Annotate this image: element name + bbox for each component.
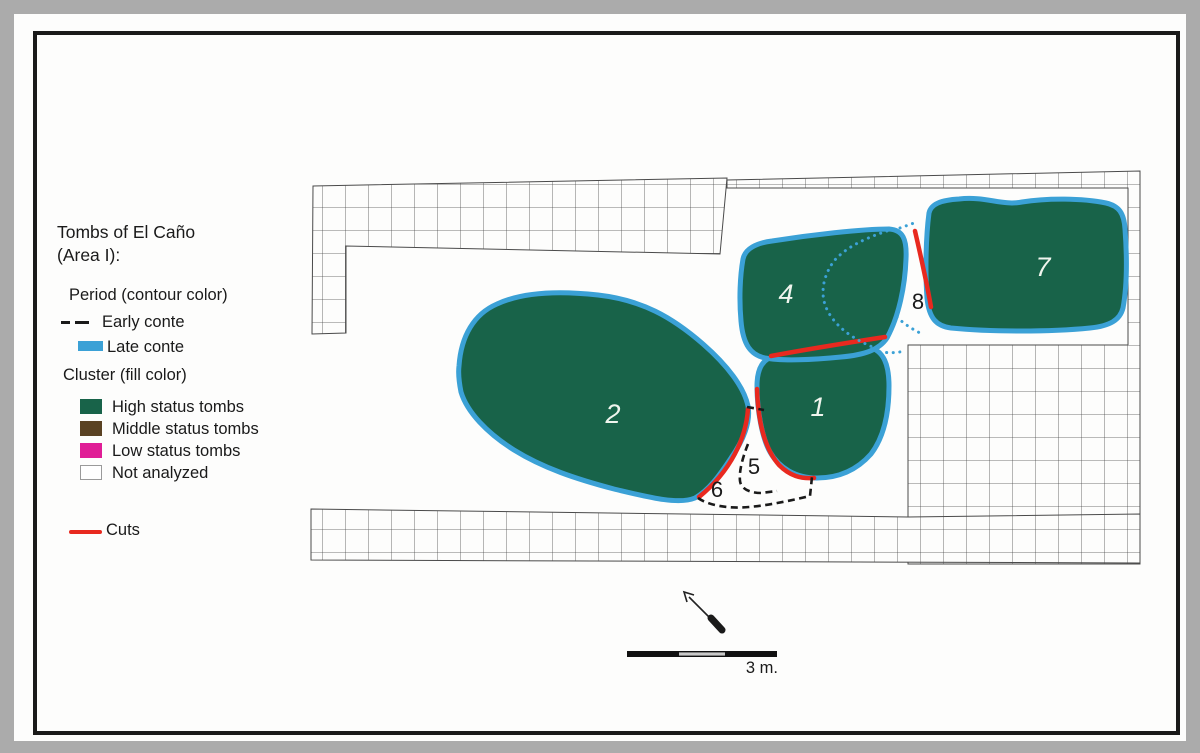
legend-early-conte-label: Early conte [102, 313, 185, 332]
legend-cuts-label: Cuts [106, 521, 140, 540]
legend-middle-status-label: Middle status tombs [112, 420, 259, 439]
tomb-7-label: 7 [1035, 252, 1051, 282]
north-arrow-solid-head [711, 618, 722, 630]
tomb-7-shape [926, 198, 1126, 331]
tomb-4-shape [740, 229, 906, 360]
map-title: Tombs of El Caño (Area I): [57, 221, 195, 267]
legend-late-conte-label: Late conte [107, 338, 184, 357]
scale-bar: 3 m. [627, 651, 778, 677]
tomb-4-label: 4 [778, 279, 793, 309]
early-conte-dash-icon [61, 321, 70, 324]
middle-status-swatch [80, 421, 102, 436]
scale-label: 3 m. [746, 659, 778, 677]
legend: Tombs of El Caño (Area I): Period (conto… [0, 0, 330, 753]
cuts-line-swatch [69, 530, 102, 534]
low-status-swatch [80, 443, 102, 458]
high-status-swatch [80, 399, 102, 414]
early-conte-dash-icon [75, 321, 89, 324]
legend-not-analyzed-label: Not analyzed [112, 464, 208, 483]
scale-bar-inner-segment [679, 652, 725, 655]
legend-period-heading: Period (contour color) [69, 286, 228, 305]
dotted-contour-tomb1-top-right [880, 351, 904, 353]
label-5: 5 [748, 454, 760, 479]
not-analyzed-swatch [80, 465, 102, 480]
legend-cluster-heading: Cluster (fill color) [63, 366, 187, 385]
legend-high-status-label: High status tombs [112, 398, 244, 417]
tomb-2-label: 2 [604, 399, 620, 429]
grid-bottom-strip [311, 509, 1140, 563]
label-6: 6 [711, 477, 723, 502]
dotted-contour-top-junction [900, 223, 914, 228]
tomb-2-shape [459, 293, 749, 501]
legend-low-status-label: Low status tombs [112, 442, 240, 461]
label-8: 8 [912, 289, 924, 314]
late-conte-line-swatch [78, 341, 103, 351]
tomb-1-label: 1 [810, 392, 825, 422]
map-title-line2: (Area I): [57, 244, 195, 267]
north-arrow-icon [684, 592, 722, 630]
map-title-line1: Tombs of El Caño [57, 221, 195, 244]
dotted-contour-below-8 [897, 317, 922, 334]
